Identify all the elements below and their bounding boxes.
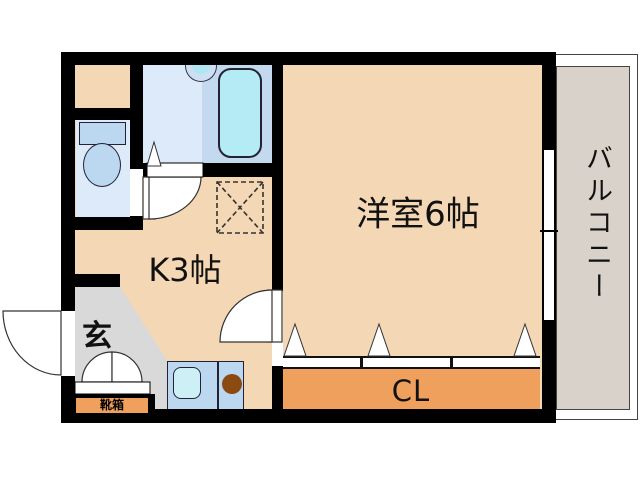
bathtub xyxy=(218,68,262,158)
wall-storage-bottom xyxy=(61,108,130,120)
wall-right-lower xyxy=(542,320,556,409)
wall-top xyxy=(61,52,556,65)
wall-center-lower xyxy=(272,367,283,409)
stove-burner xyxy=(222,374,242,394)
shoe-box-label: 靴箱 xyxy=(76,398,148,413)
wall-center-upper xyxy=(272,52,283,290)
track-tick xyxy=(450,356,453,369)
wall-entrance-stub xyxy=(61,274,120,287)
track-tick xyxy=(360,356,363,369)
entrance-door-opening xyxy=(61,310,75,377)
floor-plan: 洋室6帖 K3帖 玄 CL 靴箱 バルコニー xyxy=(0,0,640,480)
window-center-mark xyxy=(540,230,558,232)
entrance-door-swing xyxy=(3,311,61,375)
wall-storage-right xyxy=(130,65,143,168)
kitchen-sink xyxy=(173,367,201,399)
toilet-tank xyxy=(79,122,126,145)
wall-right-upper xyxy=(542,65,556,150)
balcony-window xyxy=(542,150,556,320)
balcony-label: バルコニー xyxy=(577,144,616,304)
kitchen-door-opening xyxy=(272,290,283,367)
kitchen-label: K3帖 xyxy=(148,245,221,291)
closet-door-track xyxy=(283,356,540,369)
wall-toilet-bottom xyxy=(61,217,143,230)
toilet-bowl xyxy=(83,143,121,187)
counter-divider xyxy=(217,361,219,410)
main-room-label: 洋室6帖 xyxy=(356,187,480,236)
entrance-label: 玄 xyxy=(82,311,112,355)
toilet-door-opening xyxy=(130,168,143,217)
wall-bath-bottom-right xyxy=(203,163,272,177)
closet-label: CL xyxy=(392,374,430,408)
